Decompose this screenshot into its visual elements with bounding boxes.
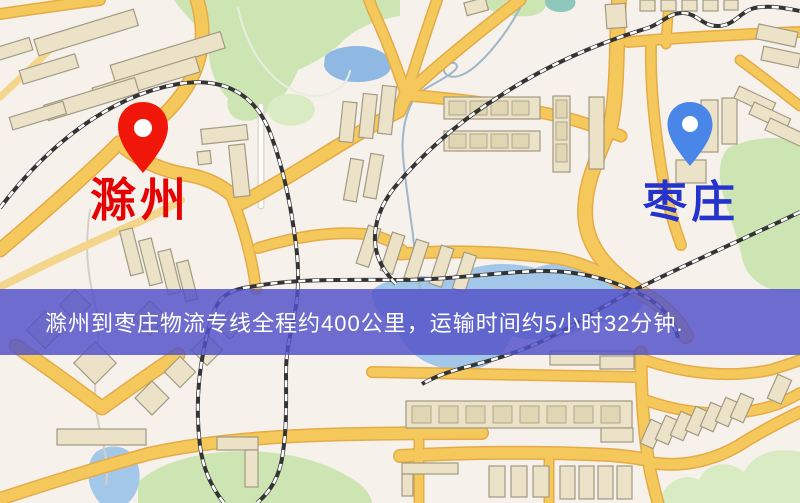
origin-pin-hole — [134, 119, 152, 137]
route-map: 滁州到枣庄物流专线全程约400公里，运输时间约5小时32分钟. 滁州 枣庄 — [0, 0, 800, 503]
info-banner: 滁州到枣庄物流专线全程约400公里，运输时间约5小时32分钟. — [0, 289, 800, 355]
destination-pin-hole — [682, 116, 698, 132]
origin-city-label: 滁州 — [90, 177, 190, 223]
info-banner-text: 滁州到枣庄物流专线全程约400公里，运输时间约5小时32分钟. — [45, 306, 684, 338]
map-canvas — [0, 0, 800, 503]
destination-city-label: 枣庄 — [643, 181, 739, 225]
